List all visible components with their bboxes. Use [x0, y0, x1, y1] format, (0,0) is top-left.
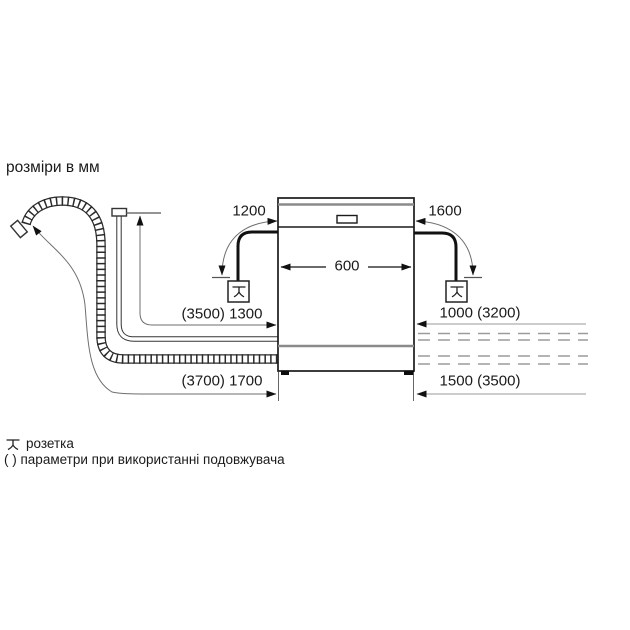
power-socket-icon-legend	[7, 440, 20, 450]
foot-right	[404, 371, 414, 376]
dim-drain-hose-right: 1500 (3500)	[440, 374, 521, 389]
supply-hose-cap	[112, 209, 127, 217]
leader-1600	[416, 221, 473, 275]
appliance-outline	[278, 198, 414, 401]
installation-diagram	[0, 0, 630, 630]
dim-drain-hose-left: (3700) 1700	[182, 374, 263, 389]
foot-left	[281, 371, 289, 376]
power-cord-right	[414, 233, 456, 281]
dim-power-cord-right: 1600	[428, 204, 461, 219]
dashed-hose-extensions	[418, 334, 588, 365]
power-socket-icon-left	[228, 281, 249, 302]
dim-appliance-width: 600	[334, 259, 359, 274]
dim-power-cord-left: 1200	[232, 204, 265, 219]
legend-socket-label: розетка	[26, 436, 74, 452]
dim-supply-hose-right: 1000 (3200)	[440, 306, 521, 321]
door-handle	[337, 216, 357, 224]
power-socket-icon-right	[446, 281, 467, 302]
power-cord-left	[238, 232, 278, 281]
leader-1200	[222, 221, 277, 275]
legend-extension-note: ( ) параметри при використанні подовжува…	[4, 452, 285, 468]
installation-diagram-page: розміри в мм 1200 1600 600 (3500) 1300 (…	[0, 0, 630, 630]
drain-hose-corrugated	[11, 201, 282, 359]
page-title: розміри в мм	[6, 159, 100, 178]
dim-supply-hose-left: (3500) 1300	[182, 307, 263, 322]
